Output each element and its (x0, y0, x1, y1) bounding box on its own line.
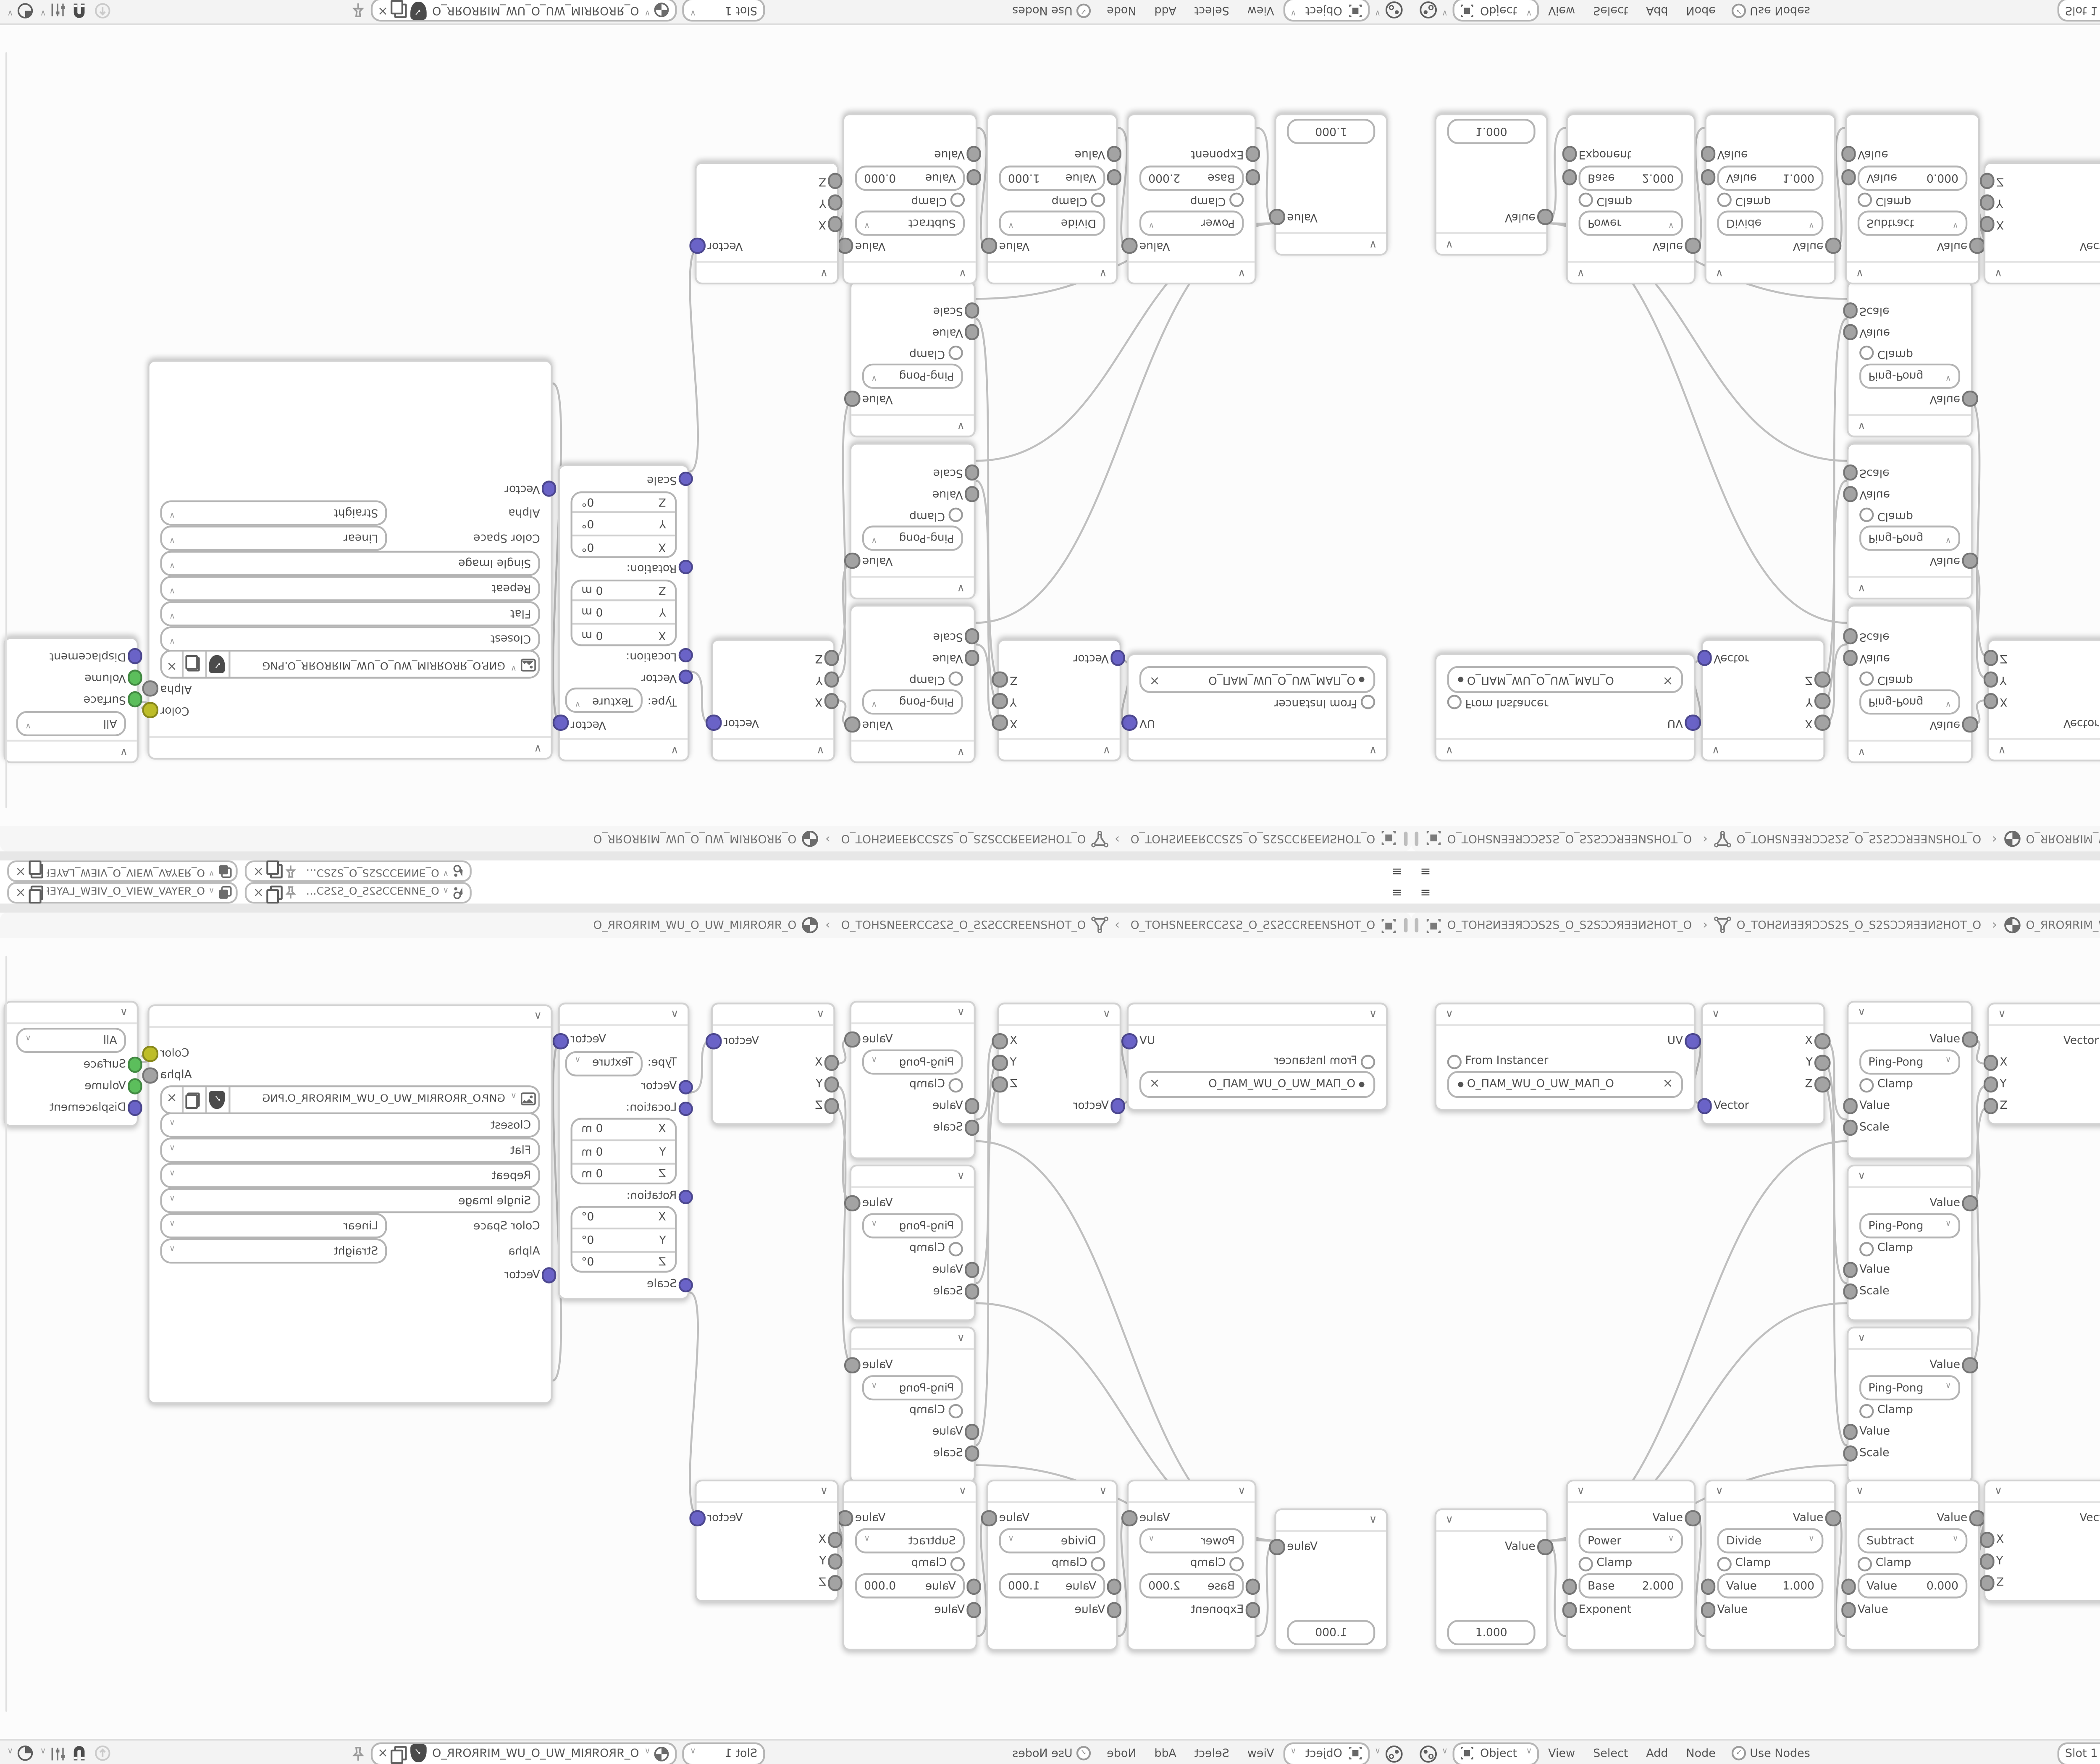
socket-input[interactable] (1979, 216, 1994, 231)
value-field[interactable]: 1.000 (1447, 1620, 1536, 1645)
socket-input[interactable] (965, 628, 980, 643)
collapse-chevron-icon[interactable]: ∨ (1858, 1171, 1866, 1182)
dropdown[interactable]: Ping-Pong∨ (1859, 1375, 1960, 1400)
menu-add[interactable]: Add (1154, 1747, 1176, 1759)
collapse-chevron-icon[interactable]: ∨ (1715, 267, 1723, 278)
node-header[interactable]: ∨ (1848, 1166, 1971, 1188)
dropdown[interactable]: Ping-Pong∨ (862, 1213, 963, 1239)
dropdown[interactable]: Flat∨ (160, 1138, 540, 1163)
editor-type-icon[interactable] (1418, 1743, 1438, 1763)
material-slot-selector[interactable]: Slot 1 ∨ (2058, 0, 2100, 23)
uv-map-selector[interactable]: O_ПAM_WU_O_UW_MAП_O× (1139, 1071, 1375, 1098)
node-math-ping-pong-3[interactable]: ∨ValuePing-Pong∨ClampValueScale (1847, 1327, 1973, 1483)
checkbox[interactable] (1859, 1241, 1874, 1255)
socket-output[interactable] (143, 680, 158, 696)
menu-node[interactable]: Node (1686, 5, 1715, 17)
use-nodes-checkbox[interactable]: ✓ Use Nodes (1012, 4, 1090, 18)
socket-output[interactable] (1814, 672, 1830, 687)
view-layer-name[interactable]: O_ЯƎYAV_WƎIV_O_VIEW_LAYER_O (47, 887, 209, 898)
checkbox[interactable] (950, 1556, 965, 1570)
socket-input[interactable] (1700, 146, 1715, 161)
collapse-chevron-icon[interactable]: ∨ (1099, 1486, 1107, 1497)
socket-input[interactable] (1700, 1603, 1715, 1618)
scene-name[interactable]: O_ƎИИƎƆƆS2S_O_S2SƆ… (302, 866, 443, 877)
node-mapping[interactable]: ∨VectorType:Texture∨VectorLocation:X0 mY… (558, 465, 690, 761)
socket-output[interactable] (1814, 693, 1830, 708)
overlays-icon[interactable] (17, 2, 35, 20)
socket-output[interactable] (838, 238, 853, 253)
collapse-chevron-icon[interactable]: ∨ (1577, 1486, 1585, 1497)
socket-output[interactable] (690, 238, 706, 253)
use-nodes-checkbox[interactable]: ✓ Use Nodes (1732, 4, 1810, 18)
collapse-chevron-icon[interactable]: ∨ (957, 1007, 965, 1018)
dropdown[interactable]: Ping-Pong∨ (1859, 1213, 1960, 1239)
node-header[interactable]: ∨ (999, 738, 1120, 759)
collapse-chevron-icon[interactable]: ∨ (671, 744, 679, 755)
scene-selector[interactable]: ∨ O_ƎИИƎƆƆS2S_O_S2SƆ… × (245, 861, 472, 882)
proportional-editing-icon[interactable] (93, 2, 111, 20)
node-combine-xyz-top[interactable]: ∨VectorXYZ (1987, 639, 2100, 761)
node-math-ping-pong-2[interactable]: ∨ValuePing-Pong∨ClampValueScale (850, 1165, 976, 1321)
node-math-ping-pong-1[interactable]: ∨ValuePing-Pong∨ClampValueScale (850, 1001, 976, 1159)
snap-settings-icon[interactable] (50, 3, 66, 19)
socket-input[interactable] (828, 1554, 843, 1569)
node-math-ping-pong-3[interactable]: ∨ValuePing-Pong∨ClampValueScale (850, 281, 976, 438)
dropdown[interactable]: Straight∨ (160, 500, 387, 525)
checkbox[interactable] (950, 194, 965, 208)
socket-output[interactable] (982, 1511, 997, 1526)
image-datablock[interactable]: ∨GИP.O_ЯROЯRIM_WU_O_UW_MIЯROЯR_O.PNG✓× (160, 1084, 540, 1113)
uv-map-selector[interactable]: O_ПAM_WU_O_UW_MAП_O× (1139, 666, 1375, 693)
socket-input[interactable] (1842, 486, 1857, 501)
node-value[interactable]: ∨Value1.000 (1274, 113, 1388, 256)
node-math-divide[interactable]: ∨ValueDivide∨ClampValue1.000Value (987, 113, 1118, 284)
value-field[interactable]: Base2.000 (1139, 165, 1244, 191)
snap-magnet-icon[interactable] (69, 2, 87, 20)
socket-input[interactable] (824, 1099, 840, 1114)
node-header[interactable]: ∨ (1129, 1481, 1255, 1503)
snap-settings-icon[interactable] (50, 1745, 66, 1761)
collapse-chevron-icon[interactable]: ∨ (1712, 744, 1720, 755)
menu-select[interactable]: Select (1593, 5, 1628, 17)
socket-output[interactable] (1122, 238, 1137, 253)
collapse-chevron-icon[interactable]: ∨ (1369, 239, 1377, 249)
node-header[interactable]: ∨ (1848, 576, 1971, 597)
socket-input[interactable] (1246, 169, 1261, 184)
close-icon[interactable]: × (15, 887, 26, 899)
dropdown[interactable]: Texture∨ (566, 1050, 642, 1076)
dropdown[interactable]: Power∨ (1139, 1528, 1244, 1554)
socket-input[interactable] (1983, 1099, 1998, 1114)
close-icon[interactable]: × (166, 659, 177, 672)
dropdown[interactable]: Single Image∨ (160, 551, 540, 576)
menu-view[interactable]: View (1247, 1747, 1274, 1759)
dropdown[interactable]: Subtract∨ (855, 1528, 965, 1554)
node-header[interactable]: ∨ (1436, 232, 1546, 254)
menu-add[interactable]: Add (1154, 5, 1176, 17)
value-field[interactable]: Value0.000 (855, 165, 965, 191)
collapse-chevron-icon[interactable]: ∨ (671, 1009, 679, 1020)
collapse-chevron-icon[interactable]: ∨ (957, 746, 965, 757)
node-math-subtract[interactable]: ∨ValueSubtract∨ClampValue0.000Value (843, 113, 977, 284)
collapse-chevron-icon[interactable]: ∨ (816, 1009, 824, 1020)
copy-icon[interactable] (269, 886, 282, 900)
node-header[interactable]: ∨ (1848, 414, 1971, 436)
value-field[interactable]: Value0.000 (1858, 165, 1967, 191)
menu-view[interactable]: View (1548, 5, 1575, 17)
socket-output[interactable] (845, 717, 860, 732)
node-math-ping-pong-1[interactable]: ∨ValuePing-Pong∨ClampValueScale (1847, 605, 1973, 763)
vector-field[interactable]: Y0° (572, 1230, 675, 1253)
socket-input[interactable] (1842, 628, 1857, 643)
shader-type-selector[interactable]: Object ∨ (1283, 1741, 1369, 1764)
socket-input[interactable] (128, 691, 143, 706)
socket-output[interactable] (1962, 1358, 1977, 1373)
collapse-chevron-icon[interactable]: ∨ (1445, 1515, 1453, 1525)
socket-input[interactable] (965, 324, 980, 339)
material-slot-selector[interactable]: Slot 1 ∨ (683, 1741, 764, 1764)
node-uv-map[interactable]: ∨UVFrom InstancerO_ПAM_WU_O_UW_MAП_O× (1127, 654, 1388, 761)
checkbox[interactable] (949, 509, 963, 523)
fake-user-shield-icon[interactable]: ✓ (409, 1744, 426, 1762)
socket-input[interactable] (679, 1101, 694, 1116)
socket-output[interactable] (1270, 209, 1285, 224)
socket-output[interactable] (1814, 1055, 1830, 1071)
socket-input[interactable] (1110, 1099, 1126, 1114)
node-canvas[interactable]: ∨UVFrom InstancerO_ПAM_WU_O_UW_MAП_O×∨XY… (0, 25, 1411, 826)
socket-input[interactable] (966, 146, 982, 161)
node-math-divide[interactable]: ∨ValueDivide∨ClampValue1.000Value (1705, 113, 1836, 284)
node-header[interactable]: ∨ (150, 1006, 551, 1028)
area-divider[interactable] (0, 903, 1411, 912)
node-header[interactable]: ∨ (1129, 1004, 1386, 1026)
socket-output[interactable] (1969, 1511, 1984, 1526)
shader-type-selector[interactable]: Object ∨ (1453, 0, 1539, 23)
editor-type-icon[interactable] (1384, 1, 1404, 21)
socket-output[interactable] (1962, 1032, 1977, 1047)
node-header[interactable]: ∨ (1989, 1004, 2100, 1026)
area-corner-handle[interactable] (1404, 918, 1408, 932)
node-header[interactable]: ∨ (851, 740, 974, 761)
node-math-divide[interactable]: ∨ValueDivide∨ClampValue1.000Value (987, 1480, 1118, 1651)
dropdown[interactable]: Single Image∨ (160, 1188, 540, 1213)
socket-input[interactable] (1696, 650, 1711, 665)
value-field[interactable]: 1.000 (1287, 119, 1375, 144)
socket-output[interactable] (1122, 715, 1137, 730)
socket-input[interactable] (1983, 672, 1998, 687)
value-field[interactable]: Base2.000 (1579, 165, 1683, 191)
node-header[interactable]: ∨ (560, 1004, 688, 1026)
value-field[interactable]: Value1.000 (999, 1573, 1105, 1599)
socket-input[interactable] (1107, 169, 1122, 184)
dropdown[interactable]: Ping-Pong∨ (1859, 525, 1960, 551)
checkbox[interactable] (1447, 696, 1462, 710)
node-combine-xyz-bottom[interactable]: ∨VectorXYZ (1984, 162, 2100, 284)
value-field[interactable]: 1.000 (1447, 119, 1536, 144)
checkbox[interactable] (1447, 1054, 1462, 1068)
fake-user-shield-icon[interactable]: ✓ (409, 2, 426, 20)
socket-input[interactable] (679, 471, 694, 486)
socket-input[interactable] (1562, 169, 1577, 184)
shader-type-selector[interactable]: Object ∨ (1283, 0, 1369, 23)
node-math-power[interactable]: ∨ValuePower∨ClampBase2.000Exponent (1127, 113, 1257, 284)
socket-output[interactable] (143, 1047, 158, 1062)
collapse-chevron-icon[interactable]: ∨ (1577, 267, 1585, 278)
socket-output[interactable] (1122, 1511, 1137, 1526)
use-nodes-checkbox[interactable]: ✓ Use Nodes (1732, 1746, 1810, 1760)
collapse-chevron-icon[interactable]: ∨ (1998, 744, 2006, 755)
node-math-power[interactable]: ∨ValuePower∨ClampBase2.000Exponent (1566, 1480, 1696, 1651)
checkbox[interactable] (949, 1403, 963, 1417)
node-header[interactable]: ∨ (1436, 1510, 1546, 1532)
dropdown[interactable]: Repeat∨ (160, 576, 540, 601)
socket-input[interactable] (965, 486, 980, 501)
menu-select[interactable]: Select (1593, 1747, 1628, 1759)
socket-input[interactable] (828, 1576, 843, 1591)
checkbox[interactable] (1717, 1556, 1732, 1570)
overlays-icon[interactable] (17, 1744, 35, 1762)
node-canvas[interactable]: ∨UVFrom InstancerO_ПAM_WU_O_UW_MAП_O×∨XY… (1411, 25, 2100, 826)
vector-field[interactable]: X0 m (572, 1119, 675, 1142)
menu-node[interactable]: Node (1107, 1747, 1136, 1759)
node-combine-xyz-top[interactable]: ∨VectorXYZ (1987, 1003, 2100, 1125)
socket-output[interactable] (838, 1511, 853, 1526)
dropdown[interactable]: Ping-Pong∨ (1859, 689, 1960, 714)
checkbox[interactable] (1361, 696, 1375, 710)
collapse-chevron-icon[interactable]: ∨ (1238, 1486, 1246, 1497)
node-math-subtract[interactable]: ∨ValueSubtract∨ClampValue0.000Value (843, 1480, 977, 1651)
checkbox[interactable] (1858, 194, 1872, 208)
socket-output[interactable] (1122, 1034, 1137, 1049)
socket-input[interactable] (1246, 1579, 1261, 1594)
dropdown[interactable]: Subtract∨ (1858, 1528, 1967, 1554)
value-field[interactable]: Value1.000 (1717, 165, 1824, 191)
node-math-ping-pong-3[interactable]: ∨ValuePing-Pong∨ClampValueScale (1847, 281, 1973, 438)
node-header[interactable]: ∨ (1985, 1481, 2100, 1503)
area-divider[interactable] (1411, 851, 2100, 860)
pin-icon[interactable] (352, 3, 366, 19)
node-header[interactable]: ∨ (988, 261, 1116, 282)
socket-output[interactable] (1685, 1511, 1700, 1526)
socket-input[interactable] (679, 1277, 694, 1292)
value-field[interactable]: 1.000 (1287, 1620, 1375, 1645)
socket-output[interactable] (1962, 1196, 1977, 1211)
node-header[interactable]: ∨ (560, 738, 688, 759)
dropdown[interactable]: Divide∨ (1717, 210, 1824, 236)
socket-input[interactable] (965, 650, 980, 665)
node-header[interactable]: ∨ (1568, 261, 1694, 282)
close-icon[interactable]: × (253, 865, 264, 877)
close-icon[interactable]: × (253, 887, 264, 899)
node-value[interactable]: ∨Value1.000 (1274, 1508, 1388, 1651)
dropdown[interactable]: All∨ (16, 711, 126, 736)
socket-input[interactable] (1842, 1446, 1857, 1461)
node-math-ping-pong-2[interactable]: ∨ValuePing-Pong∨ClampValueScale (850, 443, 976, 599)
node-combine-xyz-bottom[interactable]: ∨VectorXYZ (695, 1480, 839, 1602)
uv-map-selector[interactable]: O_ПAM_WU_O_UW_MAП_O× (1447, 1071, 1683, 1098)
collapse-chevron-icon[interactable]: ∨ (959, 1486, 967, 1497)
node-header[interactable]: ∨ (697, 261, 837, 282)
collapse-chevron-icon[interactable]: ∨ (820, 1486, 828, 1497)
menu-node[interactable]: Node (1686, 1747, 1715, 1759)
node-header[interactable]: ∨ (1703, 1004, 1823, 1026)
material-slot-selector[interactable]: Slot 1 ∨ (683, 0, 764, 23)
node-header[interactable]: ∨ (1985, 261, 2100, 282)
pin-icon[interactable] (284, 864, 297, 878)
vector-field[interactable]: X0 m (572, 622, 675, 645)
checkbox[interactable] (1859, 672, 1874, 687)
close-icon[interactable]: × (1149, 673, 1160, 686)
menu-view[interactable]: View (1247, 5, 1274, 17)
socket-output[interactable] (706, 715, 722, 730)
dropdown[interactable]: Power∨ (1579, 210, 1683, 236)
value-field[interactable]: Value1.000 (999, 165, 1105, 191)
socket-input[interactable] (1246, 1603, 1261, 1618)
node-uv-map[interactable]: ∨UVFrom InstancerO_ПAM_WU_O_UW_MAП_O× (1435, 654, 1696, 761)
socket-input[interactable] (1842, 1425, 1857, 1440)
socket-input[interactable] (1840, 1603, 1856, 1618)
socket-input[interactable] (1979, 1554, 1994, 1569)
socket-output[interactable] (993, 715, 1008, 730)
socket-input[interactable] (965, 1425, 980, 1440)
pin-icon[interactable] (352, 1745, 366, 1761)
fake-user-shield-icon[interactable]: ✓ (210, 656, 226, 674)
area-corner-handle[interactable] (1415, 832, 1419, 846)
menu-node[interactable]: Node (1107, 5, 1136, 17)
value-field[interactable]: Value0.000 (855, 1573, 965, 1599)
socket-output[interactable] (143, 702, 158, 717)
menu-select[interactable]: Select (1194, 5, 1229, 17)
socket-input[interactable] (1700, 169, 1715, 184)
collapse-chevron-icon[interactable]: ∨ (816, 744, 824, 755)
socket-input[interactable] (824, 672, 840, 687)
node-separate-xyz[interactable]: ∨XYZVector (997, 639, 1121, 761)
checkbox[interactable] (1717, 194, 1732, 208)
checkbox[interactable] (1091, 1556, 1105, 1570)
socket-input[interactable] (1840, 146, 1856, 161)
node-combine-xyz-top[interactable]: ∨VectorXYZ (711, 639, 835, 761)
socket-input[interactable] (1700, 1579, 1715, 1594)
node-combine-xyz-bottom[interactable]: ∨VectorXYZ (695, 162, 839, 284)
node-separate-xyz[interactable]: ∨XYZVector (1701, 1003, 1825, 1125)
dropdown[interactable]: Closest∨ (160, 1113, 540, 1138)
checkbox[interactable] (1859, 346, 1874, 361)
menu-icon[interactable]: ≡ (1420, 865, 1431, 877)
socket-output[interactable] (993, 1055, 1008, 1071)
node-math-subtract[interactable]: ∨ValueSubtract∨ClampValue0.000Value (1845, 113, 1980, 284)
dropdown[interactable]: Divide∨ (999, 1528, 1105, 1554)
node-math-ping-pong-1[interactable]: ∨ValuePing-Pong∨ClampValueScale (850, 605, 976, 763)
menu-add[interactable]: Add (1646, 1747, 1668, 1759)
checkbox[interactable] (1858, 1556, 1872, 1570)
socket-output[interactable] (1962, 717, 1977, 732)
collapse-chevron-icon[interactable]: ∨ (957, 582, 965, 593)
socket-input[interactable] (1696, 1099, 1711, 1114)
collapse-chevron-icon[interactable]: ∨ (1858, 746, 1866, 757)
dropdown[interactable]: Closest∨ (160, 626, 540, 651)
node-math-divide[interactable]: ∨ValueDivide∨ClampValue1.000Value (1705, 1480, 1836, 1651)
node-value[interactable]: ∨Value1.000 (1435, 1508, 1548, 1651)
copy-icon[interactable] (269, 864, 282, 878)
dropdown[interactable]: Divide∨ (999, 210, 1105, 236)
checkbox[interactable] (949, 346, 963, 361)
node-header[interactable]: ∨ (1706, 1481, 1834, 1503)
copy-icon[interactable] (31, 864, 44, 878)
node-header[interactable]: ∨ (1989, 738, 2100, 759)
node-math-ping-pong-1[interactable]: ∨ValuePing-Pong∨ClampValueScale (1847, 1001, 1973, 1159)
socket-input[interactable] (828, 1533, 843, 1548)
dropdown[interactable]: Linear∨ (160, 1213, 387, 1239)
vector-field[interactable]: X0° (572, 1208, 675, 1231)
editor-type-icon[interactable] (1384, 1743, 1404, 1763)
fake-user-shield-icon[interactable]: ✓ (210, 1090, 226, 1108)
material-datablock[interactable]: ∨ O_ЯROЯRIM_WU_O_UW_MIЯROЯR_O ✓ × (371, 1741, 677, 1764)
socket-input[interactable] (1842, 1284, 1857, 1299)
socket-input[interactable] (679, 1189, 694, 1204)
socket-output[interactable] (1825, 1511, 1840, 1526)
use-nodes-checkbox[interactable]: ✓ Use Nodes (1012, 1746, 1090, 1760)
area-divider[interactable] (1411, 903, 2100, 912)
copy-icon[interactable] (31, 886, 44, 900)
socket-input[interactable] (824, 650, 840, 665)
socket-input[interactable] (679, 1080, 694, 1095)
node-header[interactable]: ∨ (844, 1481, 976, 1503)
menu-icon[interactable]: ≡ (1420, 887, 1431, 899)
node-header[interactable]: ∨ (1703, 738, 1823, 759)
collapse-chevron-icon[interactable]: ∨ (1998, 1009, 2006, 1020)
collapse-chevron-icon[interactable]: ∨ (1102, 1009, 1110, 1020)
socket-input[interactable] (1983, 693, 1998, 708)
socket-input[interactable] (1979, 194, 1994, 210)
pin-icon[interactable] (284, 886, 297, 900)
proportional-editing-icon[interactable] (93, 1744, 111, 1762)
shader-type-selector[interactable]: Object ∨ (1453, 1741, 1539, 1764)
node-header[interactable]: ∨ (1129, 738, 1386, 759)
checkbox[interactable] (1579, 1556, 1593, 1570)
checkbox[interactable] (1579, 194, 1593, 208)
dropdown[interactable]: Flat∨ (160, 601, 540, 626)
dropdown[interactable]: All∨ (16, 1028, 126, 1053)
node-header[interactable]: ∨ (851, 414, 974, 436)
collapse-chevron-icon[interactable]: ∨ (1102, 744, 1110, 755)
socket-input[interactable] (1840, 1579, 1856, 1594)
node-header[interactable]: ∨ (1847, 1481, 1978, 1503)
node-header[interactable]: ∨ (1436, 1004, 1694, 1026)
collapse-chevron-icon[interactable]: ∨ (1238, 267, 1246, 278)
socket-output[interactable] (845, 1196, 860, 1211)
socket-output[interactable] (1685, 715, 1700, 730)
socket-output[interactable] (993, 1034, 1008, 1049)
area-corner-handle[interactable] (1415, 918, 1419, 932)
dropdown[interactable]: Subtract∨ (1858, 210, 1967, 236)
socket-input[interactable] (966, 169, 982, 184)
socket-output[interactable] (1270, 1540, 1285, 1555)
value-field[interactable]: Value1.000 (1717, 1573, 1824, 1599)
value-field[interactable]: Value0.000 (1858, 1573, 1967, 1599)
collapse-chevron-icon[interactable]: ∨ (1369, 744, 1377, 755)
collapse-chevron-icon[interactable]: ∨ (1858, 1007, 1866, 1018)
socket-output[interactable] (993, 693, 1008, 708)
dropdown[interactable]: Ping-Pong∨ (862, 1050, 963, 1075)
checkbox[interactable] (949, 672, 963, 687)
menu-view[interactable]: View (1548, 1747, 1575, 1759)
collapse-chevron-icon[interactable]: ∨ (1369, 1009, 1377, 1020)
checkbox[interactable] (1859, 509, 1874, 523)
socket-output[interactable] (554, 715, 569, 730)
node-header[interactable]: ∨ (1848, 1328, 1971, 1350)
area-divider[interactable] (0, 851, 1411, 860)
dropdown[interactable]: Texture∨ (566, 688, 642, 714)
